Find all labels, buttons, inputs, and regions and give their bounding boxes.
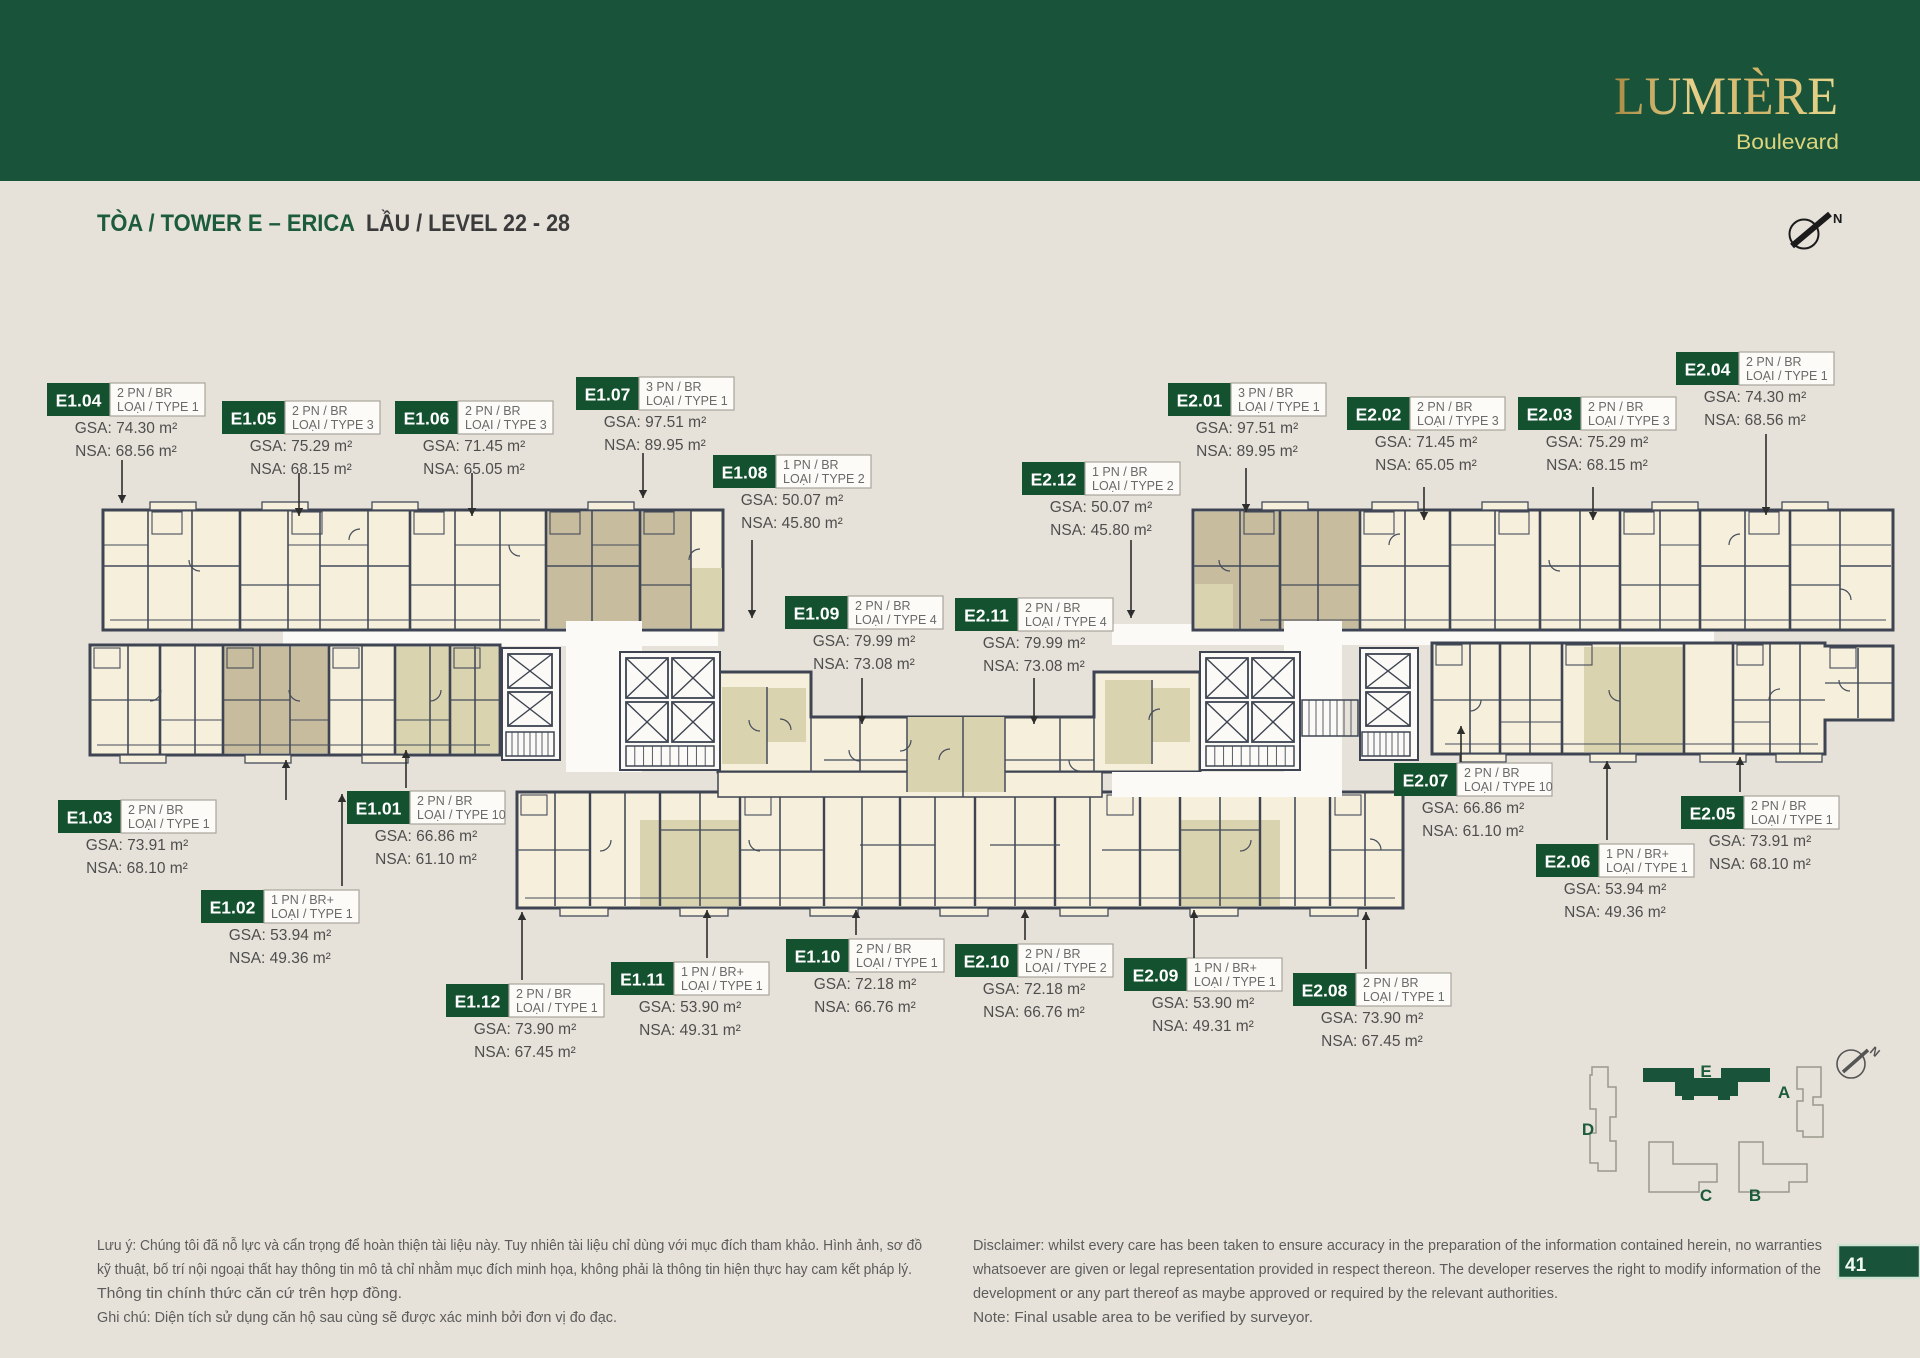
svg-text:GSA: 50.07 m²: GSA: 50.07 m²: [741, 492, 844, 509]
svg-text:E1.09: E1.09: [794, 604, 840, 624]
svg-text:NSA: 68.56 m²: NSA: 68.56 m²: [75, 443, 177, 460]
svg-text:E2.05: E2.05: [1690, 804, 1736, 824]
svg-text:NSA: 68.15 m²: NSA: 68.15 m²: [1546, 457, 1648, 474]
svg-text:1 PN / BR: 1 PN / BR: [1092, 465, 1148, 479]
svg-text:E2.12: E2.12: [1031, 470, 1077, 490]
svg-text:NSA: 49.36 m²: NSA: 49.36 m²: [1564, 904, 1666, 921]
svg-text:3 PN / BR: 3 PN / BR: [1238, 386, 1294, 400]
svg-text:E2.10: E2.10: [964, 952, 1010, 972]
svg-text:LOẠI / TYPE 3: LOẠI / TYPE 3: [1588, 414, 1670, 428]
svg-text:E2.06: E2.06: [1545, 852, 1591, 872]
svg-text:Lưu ý: Chúng tôi đã nỗ lực và: Lưu ý: Chúng tôi đã nỗ lực và cẩn trọng …: [97, 1237, 922, 1254]
svg-text:LẦU / LEVEL 22 - 28: LẦU / LEVEL 22 - 28: [366, 209, 570, 237]
svg-text:GSA: 53.94 m²: GSA: 53.94 m²: [1564, 881, 1667, 898]
svg-text:GSA: 73.91 m²: GSA: 73.91 m²: [86, 837, 189, 854]
svg-text:E1.03: E1.03: [67, 808, 113, 828]
svg-text:LOẠI / TYPE 1: LOẠI / TYPE 1: [681, 979, 763, 993]
svg-text:LOẠI / TYPE 3: LOẠI / TYPE 3: [292, 418, 374, 432]
svg-text:Boulevard: Boulevard: [1736, 131, 1839, 154]
svg-text:NSA: 61.10 m²: NSA: 61.10 m²: [1422, 823, 1524, 840]
svg-text:LOẠI / TYPE 10: LOẠI / TYPE 10: [1464, 780, 1553, 794]
svg-text:2 PN / BR: 2 PN / BR: [292, 404, 348, 418]
svg-text:TÒA / TOWER E – ERICA: TÒA / TOWER E – ERICA: [97, 209, 355, 237]
svg-text:N: N: [1833, 211, 1842, 226]
svg-text:E2.07: E2.07: [1403, 771, 1449, 791]
svg-text:2 PN / BR: 2 PN / BR: [128, 803, 184, 817]
svg-text:1 PN / BR+: 1 PN / BR+: [271, 893, 334, 907]
svg-text:Disclaimer: whilst every care: Disclaimer: whilst every care has been t…: [973, 1238, 1822, 1254]
svg-text:41: 41: [1845, 1255, 1867, 1276]
svg-text:NSA: 61.10 m²: NSA: 61.10 m²: [375, 851, 477, 868]
svg-text:GSA: 72.18 m²: GSA: 72.18 m²: [814, 976, 917, 993]
svg-text:NSA: 65.05 m²: NSA: 65.05 m²: [423, 461, 525, 478]
svg-text:LOẠI / TYPE 1: LOẠI / TYPE 1: [1751, 813, 1833, 827]
svg-text:kỹ thuật, bố trí nội ngoại thấ: kỹ thuật, bố trí nội ngoại thất hay thôn…: [97, 1261, 912, 1278]
svg-text:NSA: 67.45 m²: NSA: 67.45 m²: [474, 1044, 576, 1061]
svg-text:E2.09: E2.09: [1133, 966, 1179, 986]
svg-text:GSA: 75.29 m²: GSA: 75.29 m²: [250, 438, 353, 455]
svg-text:1 PN / BR+: 1 PN / BR+: [1194, 961, 1257, 975]
svg-text:2 PN / BR: 2 PN / BR: [1464, 766, 1520, 780]
svg-text:E2.03: E2.03: [1527, 405, 1573, 425]
svg-text:GSA: 71.45 m²: GSA: 71.45 m²: [423, 438, 526, 455]
svg-text:GSA: 74.30 m²: GSA: 74.30 m²: [1704, 389, 1807, 406]
svg-text:GSA: 97.51 m²: GSA: 97.51 m²: [604, 414, 707, 431]
svg-text:LOẠI / TYPE 10: LOẠI / TYPE 10: [417, 808, 506, 822]
svg-text:2 PN / BR: 2 PN / BR: [516, 987, 572, 1001]
svg-text:GSA: 73.91 m²: GSA: 73.91 m²: [1709, 833, 1812, 850]
svg-text:E1.08: E1.08: [722, 463, 768, 483]
svg-text:LOẠI / TYPE 1: LOẠI / TYPE 1: [128, 817, 210, 831]
svg-text:LOẠI / TYPE 4: LOẠI / TYPE 4: [1025, 615, 1107, 629]
svg-text:2 PN / BR: 2 PN / BR: [117, 386, 173, 400]
svg-text:2 PN / BR: 2 PN / BR: [465, 404, 521, 418]
svg-text:2 PN / BR: 2 PN / BR: [417, 794, 473, 808]
svg-text:1 PN / BR: 1 PN / BR: [783, 458, 839, 472]
svg-text:NSA: 45.80 m²: NSA: 45.80 m²: [1050, 522, 1152, 539]
svg-text:LOẠI / TYPE 1: LOẠI / TYPE 1: [646, 394, 728, 408]
svg-text:NSA: 73.08 m²: NSA: 73.08 m²: [983, 658, 1085, 675]
svg-text:NSA: 68.10 m²: NSA: 68.10 m²: [1709, 856, 1811, 873]
svg-text:NSA: 49.36 m²: NSA: 49.36 m²: [229, 950, 331, 967]
svg-text:LOẠI / TYPE 2: LOẠI / TYPE 2: [1025, 961, 1107, 975]
svg-text:E2.11: E2.11: [964, 606, 1009, 626]
svg-text:NSA: 89.95 m²: NSA: 89.95 m²: [604, 437, 706, 454]
svg-text:E2.02: E2.02: [1356, 405, 1402, 425]
svg-text:LOẠI / TYPE 2: LOẠI / TYPE 2: [1092, 479, 1174, 493]
svg-text:NSA: 49.31 m²: NSA: 49.31 m²: [639, 1022, 741, 1039]
svg-text:LOẠI / TYPE 3: LOẠI / TYPE 3: [1417, 414, 1499, 428]
svg-text:GSA: 73.90 m²: GSA: 73.90 m²: [1321, 1010, 1424, 1027]
svg-text:D: D: [1582, 1120, 1594, 1139]
svg-text:GSA: 53.90 m²: GSA: 53.90 m²: [639, 999, 742, 1016]
svg-text:B: B: [1749, 1186, 1761, 1205]
svg-text:NSA: 66.76 m²: NSA: 66.76 m²: [814, 999, 916, 1016]
svg-text:C: C: [1700, 1186, 1712, 1205]
svg-text:E1.11: E1.11: [620, 970, 665, 990]
svg-text:2 PN / BR: 2 PN / BR: [855, 599, 911, 613]
svg-text:LOẠI / TYPE 1: LOẠI / TYPE 1: [1194, 975, 1276, 989]
svg-text:LOẠI / TYPE 3: LOẠI / TYPE 3: [465, 418, 547, 432]
svg-text:A: A: [1778, 1083, 1790, 1102]
svg-text:NSA: 49.31 m²: NSA: 49.31 m²: [1152, 1018, 1254, 1035]
svg-text:1 PN / BR+: 1 PN / BR+: [681, 965, 744, 979]
svg-text:GSA: 72.18 m²: GSA: 72.18 m²: [983, 981, 1086, 998]
svg-text:LUMIÈRE: LUMIÈRE: [1614, 66, 1838, 126]
svg-text:GSA: 53.90 m²: GSA: 53.90 m²: [1152, 995, 1255, 1012]
svg-text:E1.07: E1.07: [585, 385, 631, 405]
svg-text:Thông tin chính thức căn cứ tr: Thông tin chính thức căn cứ trên hợp đồn…: [97, 1286, 402, 1302]
svg-text:LOẠI / TYPE 1: LOẠI / TYPE 1: [1238, 400, 1320, 414]
svg-text:LOẠI / TYPE 1: LOẠI / TYPE 1: [117, 400, 199, 414]
svg-text:E1.06: E1.06: [404, 409, 450, 429]
svg-text:Ghi chú: Diện tích sử dụng căn: Ghi chú: Diện tích sử dụng căn hộ sau cù…: [97, 1310, 617, 1326]
svg-text:GSA: 97.51 m²: GSA: 97.51 m²: [1196, 420, 1299, 437]
svg-text:2 PN / BR: 2 PN / BR: [1417, 400, 1473, 414]
svg-text:NSA: 89.95 m²: NSA: 89.95 m²: [1196, 443, 1298, 460]
svg-text:NSA: 68.56 m²: NSA: 68.56 m²: [1704, 412, 1806, 429]
svg-text:2 PN / BR: 2 PN / BR: [1588, 400, 1644, 414]
svg-text:E2.08: E2.08: [1302, 981, 1348, 1001]
svg-text:GSA: 66.86 m²: GSA: 66.86 m²: [1422, 800, 1525, 817]
svg-text:LOẠI / TYPE 2: LOẠI / TYPE 2: [783, 472, 865, 486]
svg-text:NSA: 67.45 m²: NSA: 67.45 m²: [1321, 1033, 1423, 1050]
svg-text:2 PN / BR: 2 PN / BR: [1025, 601, 1081, 615]
svg-text:E1.04: E1.04: [56, 391, 102, 411]
svg-text:development or any part thereo: development or any part thereof as maybe…: [973, 1286, 1558, 1302]
svg-text:E2.04: E2.04: [1685, 360, 1731, 380]
svg-text:GSA: 50.07 m²: GSA: 50.07 m²: [1050, 499, 1153, 516]
svg-text:E1.01: E1.01: [356, 799, 402, 819]
svg-text:LOẠI / TYPE 1: LOẠI / TYPE 1: [1746, 369, 1828, 383]
svg-text:Note: Final usable area to be: Note: Final usable area to be verified b…: [973, 1310, 1313, 1326]
svg-text:E1.02: E1.02: [210, 898, 256, 918]
svg-text:NSA: 68.15 m²: NSA: 68.15 m²: [250, 461, 352, 478]
svg-text:NSA: 45.80 m²: NSA: 45.80 m²: [741, 515, 843, 532]
svg-text:E1.10: E1.10: [795, 947, 841, 967]
svg-text:3 PN / BR: 3 PN / BR: [646, 380, 702, 394]
svg-text:LOẠI / TYPE 1: LOẠI / TYPE 1: [516, 1001, 598, 1015]
svg-text:NSA: 68.10 m²: NSA: 68.10 m²: [86, 860, 188, 877]
svg-text:E: E: [1700, 1062, 1711, 1081]
svg-text:2 PN / BR: 2 PN / BR: [1025, 947, 1081, 961]
svg-text:NSA: 73.08 m²: NSA: 73.08 m²: [813, 656, 915, 673]
svg-text:GSA: 79.99 m²: GSA: 79.99 m²: [813, 633, 916, 650]
svg-text:GSA: 74.30 m²: GSA: 74.30 m²: [75, 420, 178, 437]
svg-text:E1.12: E1.12: [455, 992, 501, 1012]
svg-text:NSA: 65.05 m²: NSA: 65.05 m²: [1375, 457, 1477, 474]
svg-text:GSA: 73.90 m²: GSA: 73.90 m²: [474, 1021, 577, 1038]
svg-text:E2.01: E2.01: [1177, 391, 1223, 411]
svg-text:2 PN / BR: 2 PN / BR: [1751, 799, 1807, 813]
svg-text:2 PN / BR: 2 PN / BR: [1363, 976, 1419, 990]
svg-text:GSA: 53.94 m²: GSA: 53.94 m²: [229, 927, 332, 944]
svg-text:LOẠI / TYPE 1: LOẠI / TYPE 1: [856, 956, 938, 970]
svg-text:NSA: 66.76 m²: NSA: 66.76 m²: [983, 1004, 1085, 1021]
svg-text:E1.05: E1.05: [231, 409, 277, 429]
svg-text:LOẠI / TYPE 1: LOẠI / TYPE 1: [1606, 861, 1688, 875]
svg-text:whatsoever are given or legal: whatsoever are given or legal representa…: [972, 1262, 1821, 1278]
svg-text:LOẠI / TYPE 1: LOẠI / TYPE 1: [1363, 990, 1445, 1004]
svg-text:1 PN / BR+: 1 PN / BR+: [1606, 847, 1669, 861]
svg-text:LOẠI / TYPE 4: LOẠI / TYPE 4: [855, 613, 937, 627]
svg-text:GSA: 75.29 m²: GSA: 75.29 m²: [1546, 434, 1649, 451]
svg-text:2 PN / BR: 2 PN / BR: [856, 942, 912, 956]
svg-text:2 PN / BR: 2 PN / BR: [1746, 355, 1802, 369]
svg-text:GSA: 66.86 m²: GSA: 66.86 m²: [375, 828, 478, 845]
svg-text:GSA: 71.45 m²: GSA: 71.45 m²: [1375, 434, 1478, 451]
svg-text:GSA: 79.99 m²: GSA: 79.99 m²: [983, 635, 1086, 652]
svg-text:LOẠI / TYPE 1: LOẠI / TYPE 1: [271, 907, 353, 921]
